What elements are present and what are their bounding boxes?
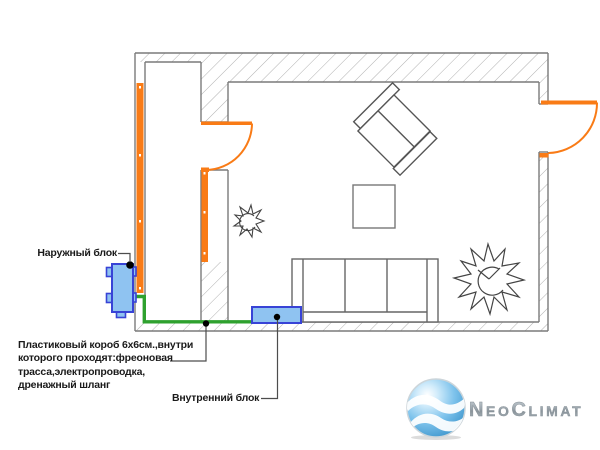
door-swing-arc [207, 124, 253, 171]
neoclimat-logo: NEOCLIMAT [405, 379, 583, 440]
outdoor-unit-icon [107, 264, 137, 318]
plant-small-icon [234, 205, 264, 237]
interior-door [201, 122, 252, 173]
partition-wall-highlight [202, 170, 209, 262]
table-icon [353, 185, 395, 228]
logo-wordmark: NEOCLIMAT [469, 399, 583, 421]
duct-line [133, 297, 257, 322]
plant-large-icon [454, 244, 524, 314]
door-swing-arc [549, 103, 598, 154]
balcony-door [540, 101, 598, 158]
label-duct-note: Пластиковый короб 6х6см.,внутри которого… [18, 339, 193, 393]
label-indoor-unit: Внутренний блок [172, 392, 259, 405]
floor-plan-page: NEOCLIMAT Наружный блок Пластиковый коро… [0, 0, 600, 450]
wall-fastener-dots [139, 86, 206, 290]
leader-indoor-unit [261, 320, 278, 399]
sofa-icon [292, 259, 438, 322]
label-outdoor-unit: Наружный блок [37, 247, 117, 260]
leader-outdoor-unit [118, 254, 130, 262]
left-wall-highlight [137, 83, 144, 293]
armchair-icon [350, 83, 442, 175]
